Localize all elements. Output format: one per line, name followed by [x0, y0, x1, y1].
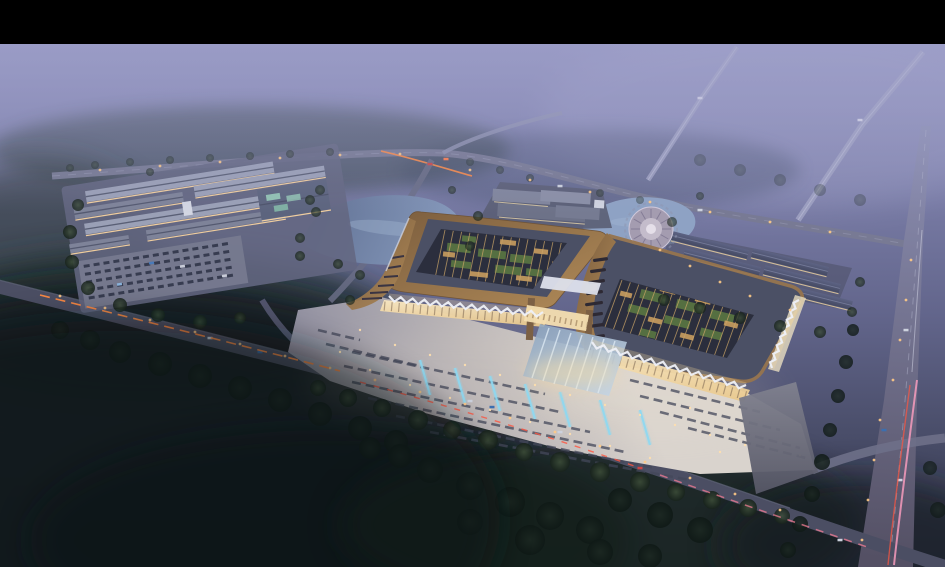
- tree: [847, 307, 857, 317]
- plaza-light: [674, 424, 676, 426]
- tree: [550, 452, 570, 472]
- street-lamp: [644, 461, 647, 464]
- car: [904, 329, 909, 332]
- street-lamp: [749, 295, 752, 298]
- street-lamp: [59, 295, 62, 298]
- tree: [638, 544, 662, 567]
- plaza-light: [359, 329, 361, 331]
- street-lamp: [659, 249, 662, 252]
- street-lamp: [873, 459, 876, 462]
- street-lamp: [892, 379, 895, 382]
- tree: [333, 259, 343, 269]
- tree: [703, 491, 721, 509]
- plaza-light: [744, 444, 746, 446]
- tree: [355, 270, 365, 280]
- plaza-light: [649, 457, 651, 459]
- plaza-light: [529, 421, 531, 423]
- tree: [515, 443, 533, 461]
- street-lamp: [789, 309, 792, 312]
- plaza-light: [719, 451, 721, 453]
- plaza-light: [339, 351, 341, 353]
- street-lamp: [719, 281, 722, 284]
- tree: [734, 312, 746, 324]
- tree: [814, 454, 830, 470]
- car: [490, 406, 495, 409]
- tree: [295, 251, 305, 261]
- tree: [151, 308, 165, 322]
- plaza-light: [409, 384, 411, 386]
- plaza-light: [489, 409, 491, 411]
- tree: [923, 461, 937, 475]
- car: [882, 429, 887, 432]
- street-lamp: [689, 477, 692, 480]
- street-lamp: [861, 539, 864, 542]
- tree: [847, 324, 859, 336]
- car: [838, 539, 843, 542]
- plaza-light: [534, 384, 536, 386]
- tree: [792, 516, 808, 532]
- tree: [658, 294, 670, 306]
- street-lamp: [867, 499, 870, 502]
- car: [638, 467, 643, 470]
- street-lamp: [419, 391, 422, 394]
- tree: [590, 462, 610, 482]
- tree: [647, 502, 673, 528]
- street-lamp: [464, 403, 467, 406]
- tree: [667, 217, 677, 227]
- tree: [831, 389, 845, 403]
- street-lamp: [734, 493, 737, 496]
- street-lamp: [829, 231, 832, 234]
- street-lamp: [509, 417, 512, 420]
- tree: [823, 423, 837, 437]
- street-lamp: [104, 307, 107, 310]
- street-lamp: [689, 265, 692, 268]
- street-lamp: [769, 221, 772, 224]
- street-lamp: [879, 419, 882, 422]
- tree: [739, 499, 757, 517]
- street-lamp: [779, 509, 782, 512]
- tree: [630, 472, 650, 492]
- plaza-light: [609, 445, 611, 447]
- plaza-light: [394, 344, 396, 346]
- street-lamp: [599, 445, 602, 448]
- tree: [804, 486, 820, 502]
- rendering-viewport: [0, 0, 945, 567]
- plaza-light: [604, 404, 606, 406]
- tree: [478, 430, 498, 450]
- tree: [780, 542, 796, 558]
- tree: [295, 233, 305, 243]
- tree: [587, 539, 613, 565]
- tree: [465, 241, 475, 251]
- tree: [687, 517, 713, 543]
- plaza-light: [709, 434, 711, 436]
- tree: [345, 295, 355, 305]
- plaza-light: [449, 397, 451, 399]
- tree: [839, 355, 853, 369]
- plaza-light: [429, 354, 431, 356]
- plaza-light: [464, 364, 466, 366]
- car: [468, 400, 473, 403]
- street-lamp: [899, 339, 902, 342]
- plaza-light: [689, 407, 691, 409]
- tree: [234, 312, 246, 324]
- street-lamp: [554, 431, 557, 434]
- tree: [536, 502, 564, 530]
- tree: [694, 302, 706, 314]
- tree: [113, 298, 127, 312]
- plaza-light: [569, 433, 571, 435]
- tree: [515, 525, 545, 555]
- plaza-light: [569, 394, 571, 396]
- tree: [81, 281, 95, 295]
- street-lamp: [905, 299, 908, 302]
- aerial-rendering: [0, 0, 945, 567]
- tree: [774, 320, 786, 332]
- plaza-light: [639, 414, 641, 416]
- tree: [63, 225, 77, 239]
- tree: [608, 488, 632, 512]
- letterbox-bar: [0, 0, 945, 44]
- car: [558, 431, 563, 434]
- street-lamp: [910, 259, 913, 262]
- tree: [855, 277, 865, 287]
- tree: [65, 255, 79, 269]
- tree: [667, 483, 685, 501]
- plaza-light: [499, 374, 501, 376]
- tree: [814, 326, 826, 338]
